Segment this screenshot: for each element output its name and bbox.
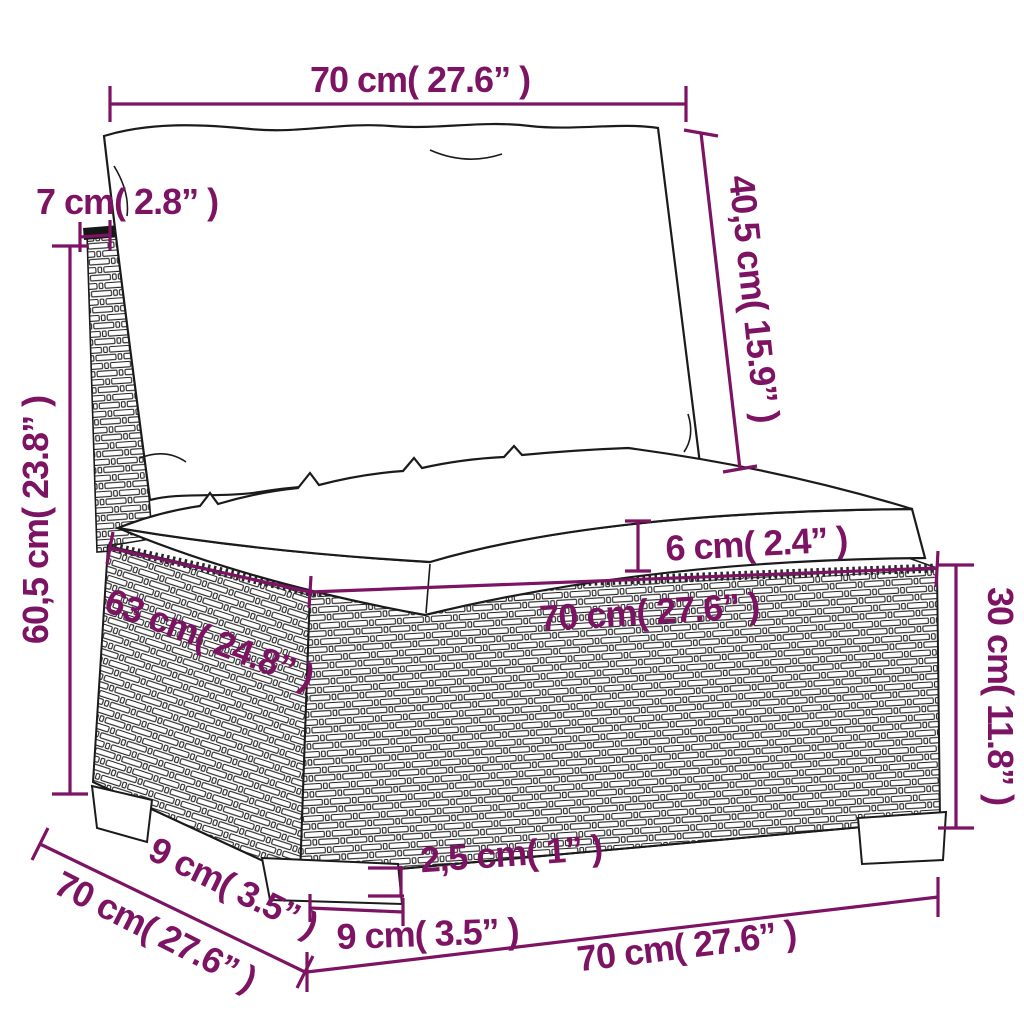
dim-line-total-height (52, 246, 88, 794)
dim-label-base-height: 30 cm( 11.8” ) (980, 587, 1021, 805)
sofa-drawing (83, 124, 946, 904)
sofa-dimension-diagram: 70 cm( 27.6” ) 7 cm( 2.8” ) 40,5 cm( 15.… (0, 0, 1024, 1024)
dim-label-total-height: 60,5 cm( 23.8” ) (15, 396, 56, 644)
dim-label-back-cushion-width: 70 cm( 27.6” ) (310, 59, 530, 100)
dimension-diagram-page: 70 cm( 27.6” ) 7 cm( 2.8” ) 40,5 cm( 15.… (0, 0, 1024, 1024)
front-right-leg (858, 812, 946, 864)
dim-label-front-width-bottom: 70 cm( 27.6” ) (575, 912, 798, 980)
dim-label-backrest-thickness: 7 cm( 2.8” ) (36, 181, 218, 222)
dim-line-base-height (938, 565, 974, 828)
dim-label-front-leg-width: 9 cm( 3.5” ) (336, 910, 519, 957)
